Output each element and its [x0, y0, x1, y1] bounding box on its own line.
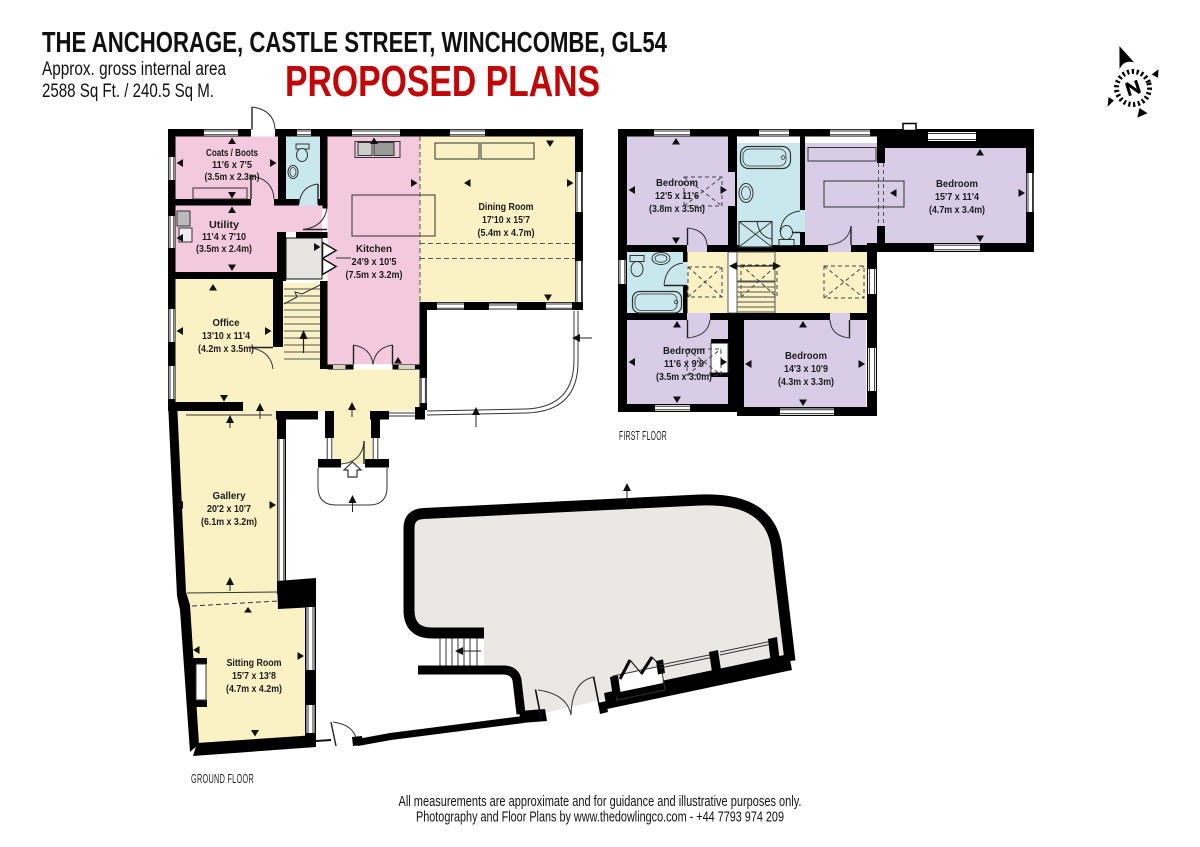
svg-text:Bedroom: Bedroom [785, 351, 827, 362]
svg-text:Dining Room: Dining Room [479, 202, 534, 213]
svg-text:13'10 x 11'4: 13'10 x 11'4 [202, 331, 250, 342]
svg-text:11'6 x 9'9: 11'6 x 9'9 [664, 359, 704, 370]
svg-text:Coats / Boots: Coats / Boots [206, 148, 258, 159]
svg-text:(4.7m x 4.2m): (4.7m x 4.2m) [226, 684, 282, 695]
svg-text:20'2 x 10'7: 20'2 x 10'7 [207, 504, 251, 515]
svg-text:Office: Office [213, 318, 240, 329]
svg-text:Sitting Room: Sitting Room [227, 658, 282, 669]
svg-text:All measurements are approxima: All measurements are approximate and for… [399, 794, 802, 810]
svg-text:(4.3m x 3.3m): (4.3m x 3.3m) [778, 377, 834, 388]
svg-text:(3.8m x 3.5m): (3.8m x 3.5m) [649, 204, 705, 215]
svg-text:Kitchen: Kitchen [356, 244, 392, 255]
svg-text:(3.5m x 2.3m): (3.5m x 2.3m) [205, 172, 260, 183]
svg-text:Approx. gross internal area: Approx. gross internal area [42, 59, 226, 80]
svg-text:THE ANCHORAGE, CASTLE STREET,: THE ANCHORAGE, CASTLE STREET, WINCHCOMBE… [42, 27, 667, 59]
svg-text:17'10 x 15'7: 17'10 x 15'7 [482, 215, 530, 226]
svg-text:2588 Sq Ft. / 240.5 Sq M.: 2588 Sq Ft. / 240.5 Sq M. [42, 81, 214, 102]
svg-text:(7.5m x 3.2m): (7.5m x 3.2m) [346, 270, 403, 281]
svg-text:11'6 x 7'5: 11'6 x 7'5 [212, 160, 252, 171]
svg-text:15'7 x 11'4: 15'7 x 11'4 [935, 192, 979, 203]
svg-text:(6.1m x 3.2m): (6.1m x 3.2m) [201, 517, 257, 528]
svg-text:12'5 x 11'6: 12'5 x 11'6 [655, 191, 699, 202]
svg-text:PROPOSED PLANS: PROPOSED PLANS [285, 57, 600, 106]
svg-text:FIRST FLOOR: FIRST FLOOR [619, 429, 667, 443]
svg-text:(3.5m x 2.4m): (3.5m x 2.4m) [196, 244, 252, 255]
svg-text:Utility: Utility [209, 220, 239, 231]
svg-text:14'3 x 10'9: 14'3 x 10'9 [784, 364, 828, 375]
svg-text:Bedroom: Bedroom [656, 178, 698, 189]
svg-text:Photography and Floor Plans by: Photography and Floor Plans by www.thedo… [416, 810, 784, 826]
svg-text:Bedroom: Bedroom [936, 179, 978, 190]
svg-text:11'4 x 7'10: 11'4 x 7'10 [202, 232, 246, 243]
svg-text:15'7 x 13'8: 15'7 x 13'8 [232, 671, 276, 682]
svg-text:(4.2m x 3.5m): (4.2m x 3.5m) [198, 344, 254, 355]
svg-text:Bedroom: Bedroom [663, 346, 705, 357]
svg-text:(4.7m x 3.4m): (4.7m x 3.4m) [929, 205, 985, 216]
svg-text:(3.5m x 3.0m): (3.5m x 3.0m) [656, 372, 712, 383]
svg-text:24'9 x 10'5: 24'9 x 10'5 [352, 257, 397, 268]
svg-text:(5.4m x 4.7m): (5.4m x 4.7m) [478, 228, 535, 239]
svg-text:Gallery: Gallery [213, 491, 246, 502]
svg-text:GROUND FLOOR: GROUND FLOOR [191, 772, 254, 786]
